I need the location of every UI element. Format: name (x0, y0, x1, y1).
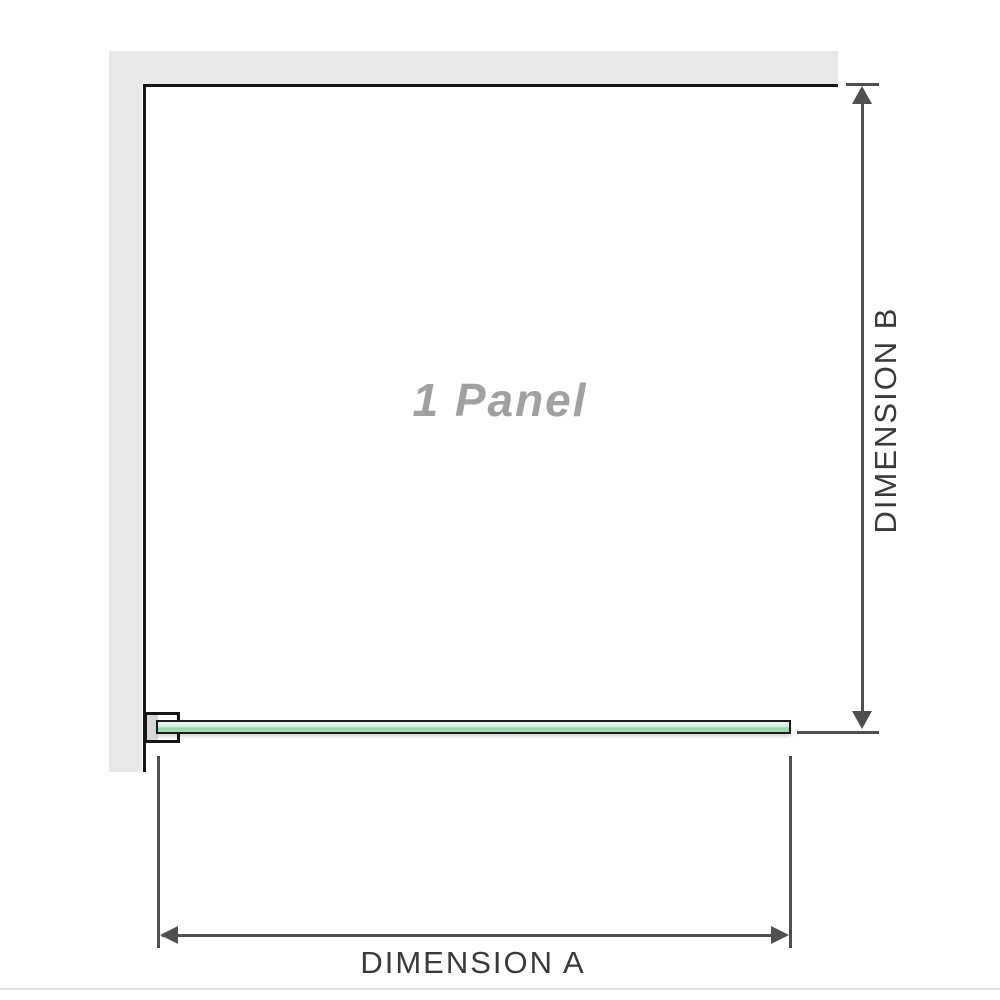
panel-outline-top (143, 84, 838, 87)
wall-top (109, 51, 838, 84)
panel-label: 1 Panel (350, 368, 650, 432)
panel-outline-left (143, 84, 146, 772)
bottom-divider (0, 988, 1000, 990)
dim-a-line (162, 934, 786, 937)
dim-a-arrow-left-icon (160, 926, 178, 944)
dim-a-ext-right (789, 756, 792, 948)
dim-a-arrow-right-icon (771, 926, 789, 944)
dim-b-line (861, 100, 864, 715)
dim-b-label: DIMENSION B (867, 280, 905, 560)
dim-a-ext-left (157, 756, 160, 948)
glass-panel-bar (156, 720, 791, 734)
shower-panel-diagram: 1 Panel DIMENSION B DIMENSION A (0, 0, 1000, 1000)
dim-b-arrow-up-icon (852, 86, 872, 104)
dim-b-arrow-down-icon (852, 711, 872, 729)
dim-b-tick-bottom (797, 731, 879, 734)
wall-left (109, 51, 142, 772)
dim-a-label: DIMENSION A (343, 944, 603, 982)
